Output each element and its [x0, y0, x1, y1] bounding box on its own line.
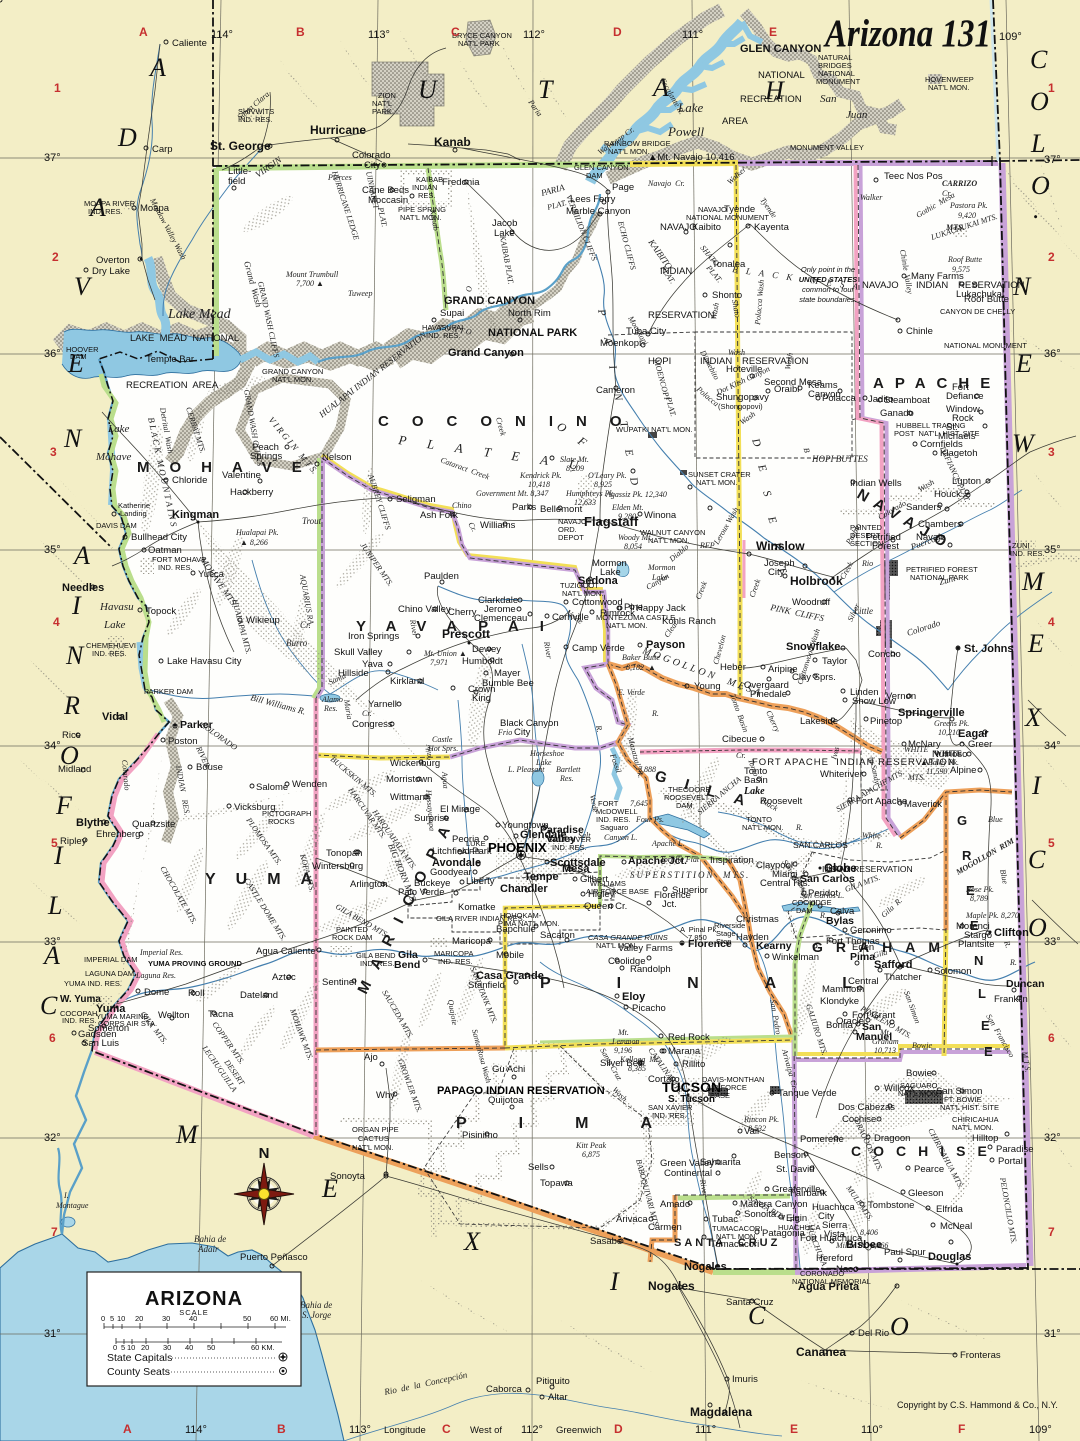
svg-text:Sanders: Sanders — [906, 502, 942, 513]
svg-text:Springerville: Springerville — [898, 707, 965, 719]
svg-text:DAM: DAM — [676, 801, 693, 810]
svg-text:GRAND CANYON: GRAND CANYON — [444, 295, 535, 307]
svg-text:Supai: Supai — [440, 308, 464, 319]
svg-text:Caborca: Caborca — [486, 1384, 523, 1395]
svg-text:Elfrida: Elfrida — [936, 1204, 964, 1215]
svg-text:Silver Bell: Silver Bell — [600, 1058, 642, 1069]
svg-text:Pearce: Pearce — [914, 1164, 944, 1175]
svg-text:Page: Page — [612, 182, 634, 193]
svg-text:34°: 34° — [44, 740, 61, 752]
svg-text:Benson: Benson — [774, 1150, 806, 1161]
svg-text:(Shongopovi): (Shongopovi) — [718, 402, 763, 411]
svg-text:Laguna Res.: Laguna Res. — [135, 971, 176, 980]
svg-text:37°: 37° — [44, 152, 61, 164]
svg-text:Poston: Poston — [168, 736, 198, 747]
svg-text:6: 6 — [49, 1031, 56, 1045]
svg-text:Fort Apache: Fort Apache — [856, 796, 907, 807]
svg-text:Stanfield: Stanfield — [468, 980, 505, 991]
svg-text:Mt. Union ▲: Mt. Union ▲ — [423, 649, 467, 658]
svg-text:L. Pleasant: L. Pleasant — [507, 765, 545, 774]
svg-text:Komatke: Komatke — [458, 902, 496, 913]
svg-text:Inspiration: Inspiration — [710, 855, 754, 866]
svg-text:NAT'L MON.: NAT'L MON. — [352, 1143, 393, 1152]
svg-text:St. David: St. David — [776, 1164, 815, 1175]
svg-text:Duncan: Duncan — [1006, 978, 1045, 990]
svg-text:Cr.: Cr. — [362, 709, 372, 718]
svg-text:E: E — [1027, 629, 1044, 658]
svg-text:Douglas: Douglas — [928, 1251, 971, 1263]
svg-text:Magdalena: Magdalena — [690, 1405, 752, 1419]
svg-text:Santa Cruz: Santa Cruz — [726, 1297, 774, 1308]
svg-text:Cochise: Cochise — [842, 1114, 876, 1125]
svg-text:Shonto: Shonto — [712, 290, 742, 301]
svg-text:10: 10 — [117, 1314, 125, 1323]
svg-text:Teec Nos Pos: Teec Nos Pos — [884, 171, 943, 182]
svg-text:RECREATION AREA: RECREATION AREA — [126, 380, 219, 391]
svg-text:Randolph: Randolph — [630, 964, 671, 975]
svg-text:Kendrick Pk.: Kendrick Pk. — [519, 471, 562, 480]
svg-text:IMPERIAL DAM: IMPERIAL DAM — [84, 955, 137, 964]
svg-text:Bend: Bend — [394, 959, 420, 971]
svg-text:Pastora Pk.: Pastora Pk. — [949, 201, 988, 210]
svg-text:Lake Havasu City: Lake Havasu City — [167, 656, 242, 667]
svg-text:Walker: Walker — [860, 193, 883, 202]
svg-text:Hillside: Hillside — [338, 668, 369, 679]
svg-text:ROCK DAM: ROCK DAM — [332, 933, 372, 942]
svg-text:Amado: Amado — [660, 1199, 690, 1210]
svg-text:111°: 111° — [695, 1424, 716, 1436]
svg-text:Lake: Lake — [103, 619, 126, 631]
svg-text:Pomerene: Pomerene — [800, 1134, 844, 1145]
svg-text:Rillito: Rillito — [682, 1059, 705, 1070]
svg-text:UNITED STATES: UNITED STATES — [799, 275, 857, 284]
svg-text:Liberty: Liberty — [466, 876, 495, 887]
svg-text:Klondyke: Klondyke — [820, 996, 859, 1007]
svg-text:DAM: DAM — [70, 352, 87, 361]
svg-text:Hereford: Hereford — [816, 1253, 853, 1264]
svg-text:San: San — [820, 93, 837, 105]
svg-text:Pierces: Pierces — [327, 173, 352, 182]
svg-text:E: E — [984, 1044, 993, 1059]
svg-text:Chinle: Chinle — [906, 326, 933, 337]
svg-text:Bumble Bee: Bumble Bee — [482, 678, 534, 689]
svg-text:O: O — [1030, 87, 1049, 116]
svg-text:Kitt Peak: Kitt Peak — [575, 1141, 606, 1150]
svg-text:Agua Caliente: Agua Caliente — [256, 946, 316, 957]
svg-text:City: City — [364, 160, 381, 171]
svg-text:Kayenta: Kayenta — [754, 222, 790, 233]
svg-text:RESERVATION: RESERVATION — [742, 356, 809, 367]
svg-text:Pine: Pine — [624, 602, 643, 613]
svg-text:CANYON DE CHELLY: CANYON DE CHELLY — [940, 307, 1015, 316]
svg-text:Carmen: Carmen — [648, 1222, 682, 1233]
svg-text:Fort Grant: Fort Grant — [852, 1010, 896, 1021]
svg-text:NAT'L MON.: NAT'L MON. — [400, 213, 441, 222]
svg-text:Bapchule: Bapchule — [496, 924, 536, 935]
svg-text:Wenden: Wenden — [292, 779, 327, 790]
svg-text:Bellemont: Bellemont — [540, 504, 583, 515]
svg-text:NAT'L PARK: NAT'L PARK — [458, 39, 500, 48]
svg-text:HOPI: HOPI — [648, 356, 671, 367]
svg-text:Hurricane: Hurricane — [310, 123, 366, 137]
svg-text:Mohave: Mohave — [95, 451, 132, 463]
svg-text:B: B — [277, 1422, 286, 1436]
svg-text:Cornville: Cornville — [552, 612, 589, 623]
svg-text:INDIAN RESERVATION: INDIAN RESERVATION — [822, 864, 913, 874]
svg-text:Altar: Altar — [548, 1392, 568, 1403]
svg-text:Chandler: Chandler — [500, 883, 548, 895]
svg-text:PHOENIX: PHOENIX — [488, 840, 547, 855]
svg-text:Greer: Greer — [968, 739, 992, 750]
svg-text:MONUMENT: MONUMENT — [816, 77, 861, 86]
svg-text:IND. RES.: IND. RES. — [158, 563, 193, 572]
svg-text:Canyon: Canyon — [808, 389, 841, 400]
svg-text:CARRIZO: CARRIZO — [942, 179, 977, 188]
svg-text:30: 30 — [162, 1314, 170, 1323]
svg-text:Taylor: Taylor — [822, 656, 847, 667]
svg-text:A: A — [139, 25, 148, 39]
svg-text:11,590: 11,590 — [926, 767, 947, 776]
svg-text:Vidal: Vidal — [102, 711, 128, 723]
svg-text:Dry Lake: Dry Lake — [92, 266, 130, 277]
svg-text:Williams: Williams — [480, 520, 516, 531]
svg-text:W: W — [1012, 429, 1036, 458]
svg-text:Gleeson: Gleeson — [908, 1188, 943, 1199]
svg-text:Mt.: Mt. — [617, 1028, 629, 1037]
svg-text:ROCKS: ROCKS — [268, 817, 295, 826]
svg-text:Holbrook: Holbrook — [790, 574, 843, 588]
svg-text:Dragoon: Dragoon — [874, 1133, 910, 1144]
svg-text:Camp Verde: Camp Verde — [572, 643, 625, 654]
svg-text:Winslow: Winslow — [756, 539, 805, 553]
svg-text:Kingman: Kingman — [172, 509, 219, 521]
svg-text:Aztec: Aztec — [272, 972, 296, 983]
svg-text:Government Mt. 8,347: Government Mt. 8,347 — [476, 489, 549, 498]
svg-text:Saguaro: Saguaro — [600, 823, 628, 832]
svg-text:A.F.B.: A.F.B. — [462, 847, 482, 856]
svg-text:Pisinimo: Pisinimo — [462, 1130, 498, 1141]
svg-text:20: 20 — [135, 1314, 143, 1323]
svg-text:Kaibito: Kaibito — [692, 222, 721, 233]
svg-text:Tuba City: Tuba City — [626, 326, 667, 337]
svg-text:Bahia de: Bahia de — [300, 1300, 332, 1310]
svg-text:Kanab: Kanab — [434, 135, 471, 149]
svg-text:Wittmann: Wittmann — [390, 792, 430, 803]
svg-text:Claypool: Claypool — [756, 860, 793, 871]
svg-text:Wickenburg: Wickenburg — [390, 758, 440, 769]
svg-text:GLEN CANYON: GLEN CANYON — [740, 43, 821, 55]
svg-text:Valentine: Valentine — [222, 470, 261, 481]
svg-text:Geronimo: Geronimo — [850, 925, 892, 936]
svg-text:5: 5 — [110, 1314, 114, 1323]
svg-text:I.: I. — [63, 1191, 69, 1200]
svg-text:Winona: Winona — [644, 510, 677, 521]
svg-text:INDIAN: INDIAN — [700, 356, 732, 367]
svg-text:C: C — [442, 1422, 451, 1436]
svg-text:Cibecue: Cibecue — [722, 734, 757, 745]
svg-text:Snowflake: Snowflake — [786, 641, 840, 653]
svg-text:Adair: Adair — [197, 1244, 219, 1254]
svg-text:NATIONAL MONUMENT: NATIONAL MONUMENT — [944, 341, 1027, 350]
svg-text:Eden: Eden — [852, 942, 874, 953]
svg-text:Basin: Basin — [744, 775, 768, 786]
svg-text:36°: 36° — [44, 348, 61, 360]
svg-text:5: 5 — [51, 836, 58, 850]
svg-text:RES.: RES. — [418, 191, 436, 200]
svg-text:Thatcher: Thatcher — [884, 972, 922, 983]
svg-text:Cherry: Cherry — [448, 607, 477, 618]
svg-text:Maple Pk. 8,270: Maple Pk. 8,270 — [965, 911, 1019, 920]
svg-text:A: A — [72, 541, 90, 570]
svg-text:Bahia de: Bahia de — [194, 1234, 226, 1244]
svg-text:Klagetoh: Klagetoh — [940, 448, 978, 459]
svg-text:Res.: Res. — [559, 774, 574, 783]
svg-text:E. Verde: E. Verde — [617, 688, 645, 697]
svg-text:Roosevelt: Roosevelt — [760, 796, 803, 807]
svg-text:Marble Canyon: Marble Canyon — [566, 206, 630, 217]
svg-text:ORGAN PIPE: ORGAN PIPE — [352, 1125, 399, 1134]
svg-text:Apache L.: Apache L. — [651, 839, 684, 848]
svg-text:Bisbee: Bisbee — [846, 1239, 882, 1251]
svg-text:Roll: Roll — [188, 988, 204, 999]
svg-text:40: 40 — [185, 1343, 193, 1352]
svg-text:Hackberry: Hackberry — [230, 487, 274, 498]
svg-text:Ajo: Ajo — [364, 1052, 378, 1063]
svg-text:IND. RES.: IND. RES. — [438, 957, 473, 966]
svg-text:Chino Valley: Chino Valley — [398, 604, 451, 615]
svg-text:Yarnell: Yarnell — [368, 699, 397, 710]
svg-text:Lake: Lake — [107, 423, 130, 435]
svg-text:Skull Valley: Skull Valley — [334, 647, 383, 658]
svg-text:10,418: 10,418 — [528, 480, 550, 489]
svg-text:Continental: Continental — [664, 1168, 712, 1179]
svg-text:NAT'L MON.: NAT'L MON. — [952, 1123, 993, 1132]
svg-text:R.: R. — [1009, 958, 1017, 967]
svg-text:IND. RES.: IND. RES. — [360, 959, 395, 968]
svg-text:Tuweep: Tuweep — [348, 289, 372, 298]
svg-text:20: 20 — [141, 1343, 149, 1352]
svg-text:Res.: Res. — [323, 704, 338, 713]
svg-text:field: field — [228, 176, 245, 187]
svg-text:Lake Mead: Lake Mead — [167, 307, 232, 322]
svg-text:Greens Pk.: Greens Pk. — [934, 719, 969, 728]
svg-text:Ganado: Ganado — [880, 408, 914, 419]
svg-text:Why: Why — [376, 1090, 395, 1101]
svg-text:NATIONAL PARK: NATIONAL PARK — [488, 327, 577, 339]
svg-text:3: 3 — [1048, 445, 1055, 459]
svg-text:112°: 112° — [521, 1424, 543, 1436]
svg-text:C: C — [451, 25, 460, 39]
svg-text:Vail: Vail — [744, 1126, 759, 1137]
svg-text:Hot Sprs.: Hot Sprs. — [427, 744, 458, 753]
svg-text:2: 2 — [1048, 250, 1055, 264]
svg-text:Eloy: Eloy — [622, 991, 646, 1003]
svg-text:D: D — [117, 123, 137, 152]
svg-text:PARK: PARK — [372, 107, 392, 116]
svg-text:ARIZONA: ARIZONA — [145, 1288, 243, 1310]
svg-text:Safford: Safford — [874, 959, 913, 971]
svg-text:Humboldt: Humboldt — [462, 656, 503, 667]
svg-text:El Mirage: El Mirage — [440, 804, 480, 815]
svg-text:Clay Sprs.: Clay Sprs. — [792, 672, 836, 683]
svg-text:E: E — [1015, 349, 1032, 378]
svg-text:Lees Ferry: Lees Ferry — [570, 194, 616, 205]
svg-text:5: 5 — [121, 1343, 125, 1352]
svg-text:I: I — [609, 1267, 620, 1296]
svg-text:Seligman: Seligman — [396, 494, 436, 505]
svg-text:F: F — [55, 791, 73, 820]
svg-text:9,196: 9,196 — [614, 1046, 632, 1055]
svg-text:Tonopah: Tonopah — [326, 848, 362, 859]
svg-text:Horseshoe: Horseshoe — [529, 749, 565, 758]
svg-text:Navajo Cr.: Navajo Cr. — [647, 179, 685, 188]
svg-text:NAT'L MON.: NAT'L MON. — [606, 621, 647, 630]
svg-text:Arizona 131: Arizona 131 — [822, 12, 991, 55]
svg-text:8,406: 8,406 — [860, 1228, 878, 1237]
svg-text:Temple Bar: Temple Bar — [146, 354, 194, 365]
svg-text:Steamboat: Steamboat — [884, 395, 930, 406]
svg-text:McNeal: McNeal — [940, 1221, 972, 1232]
svg-text:RESERVATION: RESERVATION — [648, 310, 715, 321]
svg-text:34°: 34° — [1044, 740, 1061, 752]
svg-text:Canyon L.: Canyon L. — [604, 833, 637, 842]
svg-text:Sasabe: Sasabe — [590, 1236, 622, 1247]
svg-text:Wikieup: Wikieup — [246, 615, 280, 626]
svg-text:MONUMENT VALLEY: MONUMENT VALLEY — [790, 143, 864, 152]
svg-text:DAM: DAM — [586, 171, 603, 180]
svg-text:114°: 114° — [211, 29, 233, 41]
svg-text:F: F — [958, 1422, 965, 1436]
svg-text:Trout: Trout — [302, 516, 322, 526]
svg-text:Morristown: Morristown — [386, 774, 432, 785]
svg-text:NAT'L MON.: NAT'L MON. — [648, 536, 689, 545]
svg-text:Rincon Pk.: Rincon Pk. — [743, 1115, 779, 1124]
svg-text:Sells: Sells — [528, 1162, 549, 1173]
svg-text:White: White — [862, 831, 881, 840]
svg-text:37°: 37° — [1044, 154, 1061, 166]
svg-text:Tombstone: Tombstone — [868, 1200, 914, 1211]
svg-text:Nogales: Nogales — [648, 1279, 695, 1293]
svg-text:Pitiquito: Pitiquito — [536, 1376, 570, 1387]
svg-text:Woodruff: Woodruff — [792, 597, 831, 608]
svg-text:L: L — [978, 986, 986, 1001]
svg-text:Maricopa: Maricopa — [452, 936, 492, 947]
svg-text:Lake: Lake — [677, 100, 704, 115]
svg-text:Manuel: Manuel — [856, 1031, 892, 1043]
svg-text:6,875: 6,875 — [582, 1150, 600, 1159]
svg-text:Cottonwood: Cottonwood — [572, 597, 623, 608]
svg-text:LAKE MEAD NATIONAL: LAKE MEAD NATIONAL — [130, 333, 239, 344]
svg-text:Payson: Payson — [646, 639, 685, 651]
svg-text:Paul Spur: Paul Spur — [884, 1247, 926, 1258]
svg-text:Chloride: Chloride — [172, 475, 207, 486]
svg-text:Ripley: Ripley — [60, 836, 87, 847]
svg-text:Lake: Lake — [651, 573, 668, 582]
svg-text:Tonalea: Tonalea — [712, 259, 746, 270]
svg-text:Sacaton: Sacaton — [540, 930, 575, 941]
svg-text:Navajo: Navajo — [916, 532, 946, 543]
svg-text:Parks: Parks — [512, 502, 537, 513]
svg-text:Gu Achi: Gu Achi — [492, 1064, 525, 1075]
svg-text:Topock: Topock — [146, 606, 176, 617]
svg-text:Wintersburg: Wintersburg — [312, 861, 363, 872]
svg-text:AREA: AREA — [722, 116, 749, 127]
svg-text:Imperial Res.: Imperial Res. — [139, 948, 183, 957]
svg-text:X: X — [1024, 703, 1042, 732]
svg-text:Nogales: Nogales — [684, 1261, 727, 1273]
svg-text:HUACHUCA: HUACHUCA — [778, 1223, 821, 1232]
svg-text:APACHE: APACHE — [873, 375, 1001, 392]
svg-text:N: N — [259, 1145, 270, 1162]
svg-text:Nelson: Nelson — [322, 452, 352, 463]
svg-text:Vernon: Vernon — [886, 691, 916, 702]
svg-text:YUMA IND. RES.: YUMA IND. RES. — [64, 979, 122, 988]
svg-text:8,925: 8,925 — [594, 480, 612, 489]
svg-text:B: B — [296, 25, 305, 39]
svg-text:Apache Jct.: Apache Jct. — [628, 855, 687, 867]
svg-text:common to four: common to four — [802, 285, 855, 294]
svg-text:31°: 31° — [1044, 1328, 1061, 1340]
svg-text:40: 40 — [189, 1314, 197, 1323]
svg-text:Sonoyta: Sonoyta — [330, 1171, 366, 1182]
svg-text:109°: 109° — [1029, 1424, 1052, 1436]
svg-text:Dos Cabezas: Dos Cabezas — [838, 1102, 895, 1113]
svg-text:Cr.: Cr. — [942, 189, 952, 198]
svg-text:IND. RES.: IND. RES. — [88, 207, 123, 216]
svg-text:Dome: Dome — [144, 987, 169, 998]
svg-text:Iron Springs: Iron Springs — [348, 631, 399, 642]
svg-text:NAT'L MON.: NAT'L MON. — [696, 478, 737, 487]
svg-text:Caliente: Caliente — [172, 38, 207, 49]
svg-text:Congress: Congress — [352, 719, 393, 730]
svg-text:35°: 35° — [1044, 544, 1061, 556]
svg-text:Stop: Stop — [716, 937, 731, 946]
svg-text:36°: 36° — [1044, 348, 1061, 360]
svg-text:50: 50 — [243, 1314, 251, 1323]
svg-text:Tumacacori: Tumacacori — [710, 1239, 759, 1250]
svg-text:Concho: Concho — [868, 649, 901, 660]
svg-text:R: R — [63, 691, 80, 720]
svg-text:County Seats: County Seats — [107, 1366, 170, 1378]
svg-text:West of: West of — [470, 1425, 502, 1436]
svg-text:Flagstaff: Flagstaff — [584, 514, 639, 529]
svg-text:S. Jorge: S. Jorge — [302, 1310, 331, 1320]
svg-text:Powell: Powell — [667, 124, 704, 139]
svg-text:NAT'L MON.: NAT'L MON. — [928, 83, 969, 92]
svg-text:YUMA PROVING GROUND: YUMA PROVING GROUND — [148, 959, 242, 968]
svg-text:Heber: Heber — [720, 662, 746, 673]
svg-text:Baker Butte: Baker Butte — [622, 653, 660, 662]
svg-text:4: 4 — [1048, 615, 1055, 629]
svg-text:Lupton: Lupton — [952, 476, 981, 487]
svg-text:Castle: Castle — [432, 735, 453, 744]
svg-text:Bowie: Bowie — [912, 1041, 932, 1050]
svg-text:NATIONAL MONUMENT: NATIONAL MONUMENT — [686, 213, 769, 222]
svg-text:Lake: Lake — [494, 228, 515, 239]
svg-text:RFP: RFP — [699, 541, 715, 550]
svg-text:Solomon: Solomon — [934, 966, 972, 977]
svg-text:3: 3 — [50, 445, 57, 459]
svg-text:DAM: DAM — [796, 906, 813, 915]
svg-text:CACTUS: CACTUS — [358, 1134, 389, 1143]
svg-text:A: A — [148, 53, 166, 82]
svg-text:Imuris: Imuris — [732, 1374, 758, 1385]
svg-text:Cananea: Cananea — [796, 1345, 846, 1359]
svg-text:San Carlos: San Carlos — [800, 873, 855, 885]
svg-text:IND. RES.: IND. RES. — [552, 843, 587, 852]
svg-text:Lemmon: Lemmon — [611, 1037, 640, 1046]
svg-text:Dateland: Dateland — [240, 990, 278, 1001]
